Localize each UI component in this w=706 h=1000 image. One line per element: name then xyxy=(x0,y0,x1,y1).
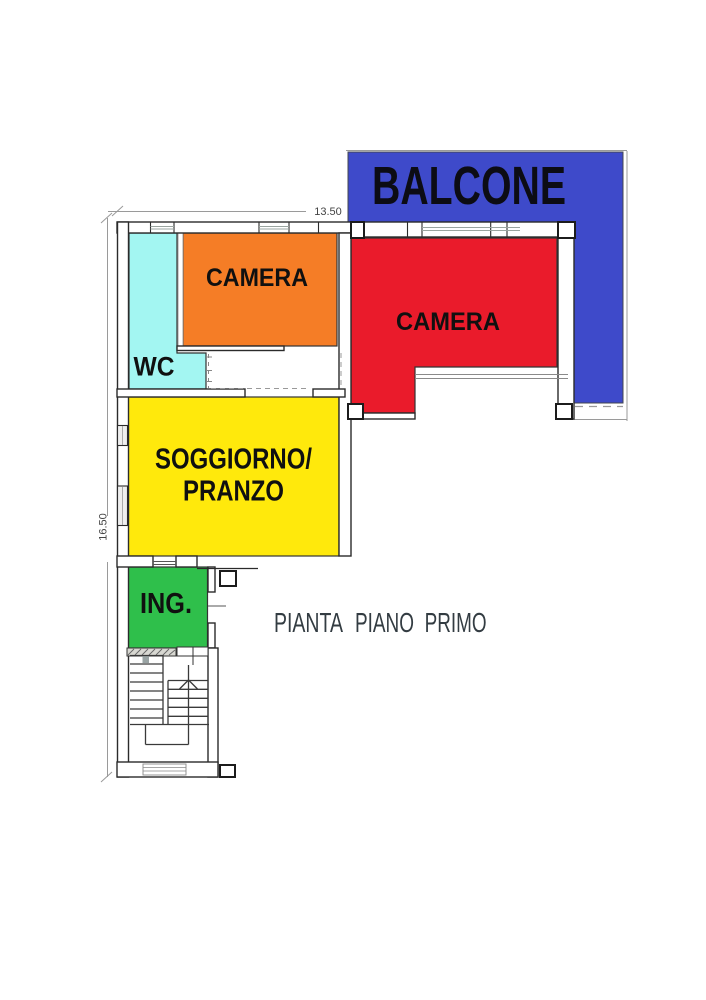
svg-text:BALCONE: BALCONE xyxy=(372,156,566,216)
svg-text:13.50: 13.50 xyxy=(314,206,342,218)
svg-text:WC: WC xyxy=(134,352,175,382)
svg-text:SOGGIORNO/: SOGGIORNO/ xyxy=(155,444,312,476)
svg-text:PRANZO: PRANZO xyxy=(183,476,284,508)
svg-text:CAMERA: CAMERA xyxy=(206,264,308,292)
svg-text:PIANTA: PIANTA xyxy=(274,607,343,638)
svg-text:CAMERA: CAMERA xyxy=(396,308,500,336)
svg-text:PIANO: PIANO xyxy=(355,607,414,638)
svg-text:16.50: 16.50 xyxy=(98,513,110,541)
svg-text:PRIMO: PRIMO xyxy=(425,607,487,638)
svg-text:ING.: ING. xyxy=(140,588,192,620)
